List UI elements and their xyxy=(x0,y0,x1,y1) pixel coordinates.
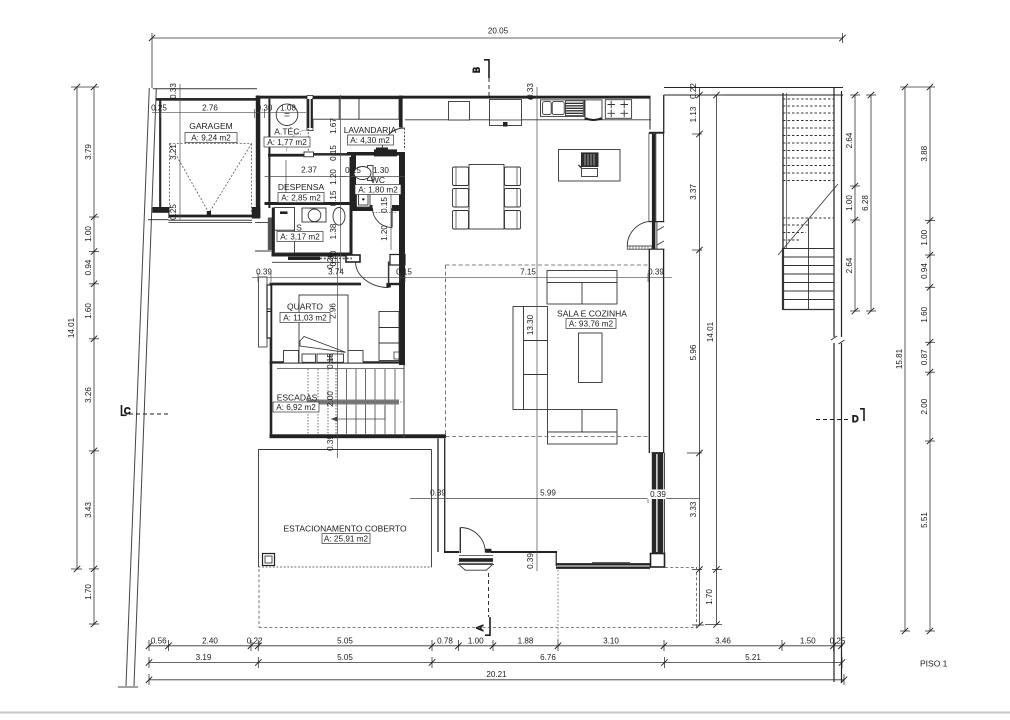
svg-text:0.56: 0.56 xyxy=(151,637,167,646)
svg-text:3.10: 3.10 xyxy=(603,637,619,646)
svg-text:1.38: 1.38 xyxy=(329,223,338,239)
svg-text:1.60: 1.60 xyxy=(84,303,93,319)
svg-text:14.01: 14.01 xyxy=(67,317,76,338)
svg-text:14.01: 14.01 xyxy=(706,321,715,342)
svg-text:0.15: 0.15 xyxy=(396,268,412,277)
svg-text:13.30: 13.30 xyxy=(526,314,535,335)
svg-text:3.46: 3.46 xyxy=(715,637,731,646)
svg-text:0.15: 0.15 xyxy=(329,190,338,206)
svg-text:3.88: 3.88 xyxy=(920,145,929,161)
svg-text:A: 4,30 m2: A: 4,30 m2 xyxy=(350,136,390,145)
svg-text:1.13: 1.13 xyxy=(689,106,698,122)
svg-text:1.88: 1.88 xyxy=(518,637,534,646)
svg-text:3.74: 3.74 xyxy=(328,268,344,277)
svg-text:1.08: 1.08 xyxy=(280,104,296,113)
svg-text:2.64: 2.64 xyxy=(845,132,854,148)
svg-text:0.33: 0.33 xyxy=(526,83,535,99)
svg-text:5.05: 5.05 xyxy=(337,637,353,646)
svg-text:GARAGEM: GARAGEM xyxy=(189,121,232,131)
svg-text:3.19: 3.19 xyxy=(196,653,212,662)
svg-text:0.78: 0.78 xyxy=(437,637,453,646)
svg-text:2.00: 2.00 xyxy=(920,398,929,414)
svg-text:0.39: 0.39 xyxy=(256,268,272,277)
svg-text:A: 1,77 m2: A: 1,77 m2 xyxy=(267,138,307,147)
svg-text:1.60: 1.60 xyxy=(920,306,929,322)
svg-text:1.00: 1.00 xyxy=(845,195,854,211)
svg-text:0.20: 0.20 xyxy=(326,253,335,269)
svg-text:0.15: 0.15 xyxy=(380,197,389,213)
svg-text:ESTACIONAMENTO COBERTO: ESTACIONAMENTO COBERTO xyxy=(283,524,407,534)
svg-text:7.15: 7.15 xyxy=(520,268,536,277)
svg-text:5.99: 5.99 xyxy=(540,489,556,498)
svg-text:B: B xyxy=(472,67,482,73)
svg-text:DESPENSA: DESPENSA xyxy=(278,182,325,192)
svg-text:2.40: 2.40 xyxy=(202,637,218,646)
svg-text:A: 93,76 m2: A: 93,76 m2 xyxy=(569,320,614,329)
svg-text:ESCADAS: ESCADAS xyxy=(277,393,318,403)
svg-text:3.26: 3.26 xyxy=(84,387,93,403)
svg-text:QUARTO: QUARTO xyxy=(287,302,323,312)
svg-text:A: 25,91 m2: A: 25,91 m2 xyxy=(324,535,369,544)
svg-text:5.51: 5.51 xyxy=(920,512,929,528)
svg-text:1.67: 1.67 xyxy=(329,118,338,134)
svg-text:0.39: 0.39 xyxy=(650,490,666,499)
svg-text:LAVANDARIA: LAVANDARIA xyxy=(344,125,397,135)
svg-text:0.94: 0.94 xyxy=(84,259,93,275)
svg-text:0.15: 0.15 xyxy=(326,353,335,369)
svg-text:0.25: 0.25 xyxy=(151,104,167,113)
svg-text:0.87: 0.87 xyxy=(920,349,929,365)
svg-text:A: 6,92 m2: A: 6,92 m2 xyxy=(276,403,316,412)
svg-text:3.43: 3.43 xyxy=(84,502,93,518)
svg-text:1.20: 1.20 xyxy=(380,225,389,241)
svg-text:6.76: 6.76 xyxy=(540,653,556,662)
svg-text:5.21: 5.21 xyxy=(745,653,761,662)
svg-text:A: 1,80 m2: A: 1,80 m2 xyxy=(358,186,398,195)
svg-text:A.TÉC.: A.TÉC. xyxy=(274,127,301,137)
svg-text:A: A xyxy=(475,625,485,631)
svg-text:3.21: 3.21 xyxy=(169,144,178,160)
svg-text:SALA E COZINHA: SALA E COZINHA xyxy=(557,309,627,319)
svg-text:WC: WC xyxy=(371,175,385,185)
svg-text:2.00: 2.00 xyxy=(326,391,335,407)
svg-text:2.76: 2.76 xyxy=(202,104,218,113)
svg-text:3.33: 3.33 xyxy=(689,501,698,517)
svg-text:1.30: 1.30 xyxy=(373,166,389,175)
svg-text:1.70: 1.70 xyxy=(84,584,93,600)
svg-text:0.94: 0.94 xyxy=(920,263,929,279)
svg-text:0.25: 0.25 xyxy=(830,637,846,646)
svg-text:A: 11,03 m2: A: 11,03 m2 xyxy=(283,314,327,323)
svg-text:20.05: 20.05 xyxy=(488,27,509,36)
svg-text:0.33: 0.33 xyxy=(169,83,178,99)
svg-text:5.96: 5.96 xyxy=(689,344,698,360)
svg-text:0.15: 0.15 xyxy=(329,145,338,161)
svg-text:PISO 1: PISO 1 xyxy=(920,659,948,669)
svg-text:6.28: 6.28 xyxy=(861,195,870,211)
svg-text:S: S xyxy=(296,223,302,233)
svg-text:0.39: 0.39 xyxy=(326,435,335,451)
svg-text:2.37: 2.37 xyxy=(301,166,317,175)
svg-text:3.37: 3.37 xyxy=(689,184,698,200)
svg-text:2.64: 2.64 xyxy=(845,257,854,273)
svg-text:5.05: 5.05 xyxy=(337,653,353,662)
svg-text:A: 2,85 m2: A: 2,85 m2 xyxy=(281,194,321,203)
svg-text:0.22: 0.22 xyxy=(247,637,263,646)
svg-text:20.21: 20.21 xyxy=(486,670,507,679)
svg-text:0.22: 0.22 xyxy=(689,83,698,99)
svg-text:0.30: 0.30 xyxy=(257,104,273,113)
svg-text:A: 3,17 m2: A: 3,17 m2 xyxy=(280,233,320,242)
svg-text:0.25: 0.25 xyxy=(169,204,178,220)
svg-text:1.70: 1.70 xyxy=(705,589,714,605)
svg-text:0.15: 0.15 xyxy=(345,166,361,175)
svg-text:0.39: 0.39 xyxy=(430,489,446,498)
svg-text:1.00: 1.00 xyxy=(468,637,484,646)
svg-text:0.39: 0.39 xyxy=(648,268,664,277)
svg-text:1.20: 1.20 xyxy=(329,169,338,185)
svg-text:0.39: 0.39 xyxy=(526,553,535,569)
svg-text:1.00: 1.00 xyxy=(84,226,93,242)
svg-text:1.00: 1.00 xyxy=(920,229,929,245)
svg-text:1.50: 1.50 xyxy=(800,637,816,646)
svg-text:15.81: 15.81 xyxy=(895,348,904,369)
svg-text:A: 9,24 m2: A: 9,24 m2 xyxy=(191,134,231,143)
svg-text:D: D xyxy=(852,414,859,424)
svg-text:3.79: 3.79 xyxy=(84,144,93,160)
